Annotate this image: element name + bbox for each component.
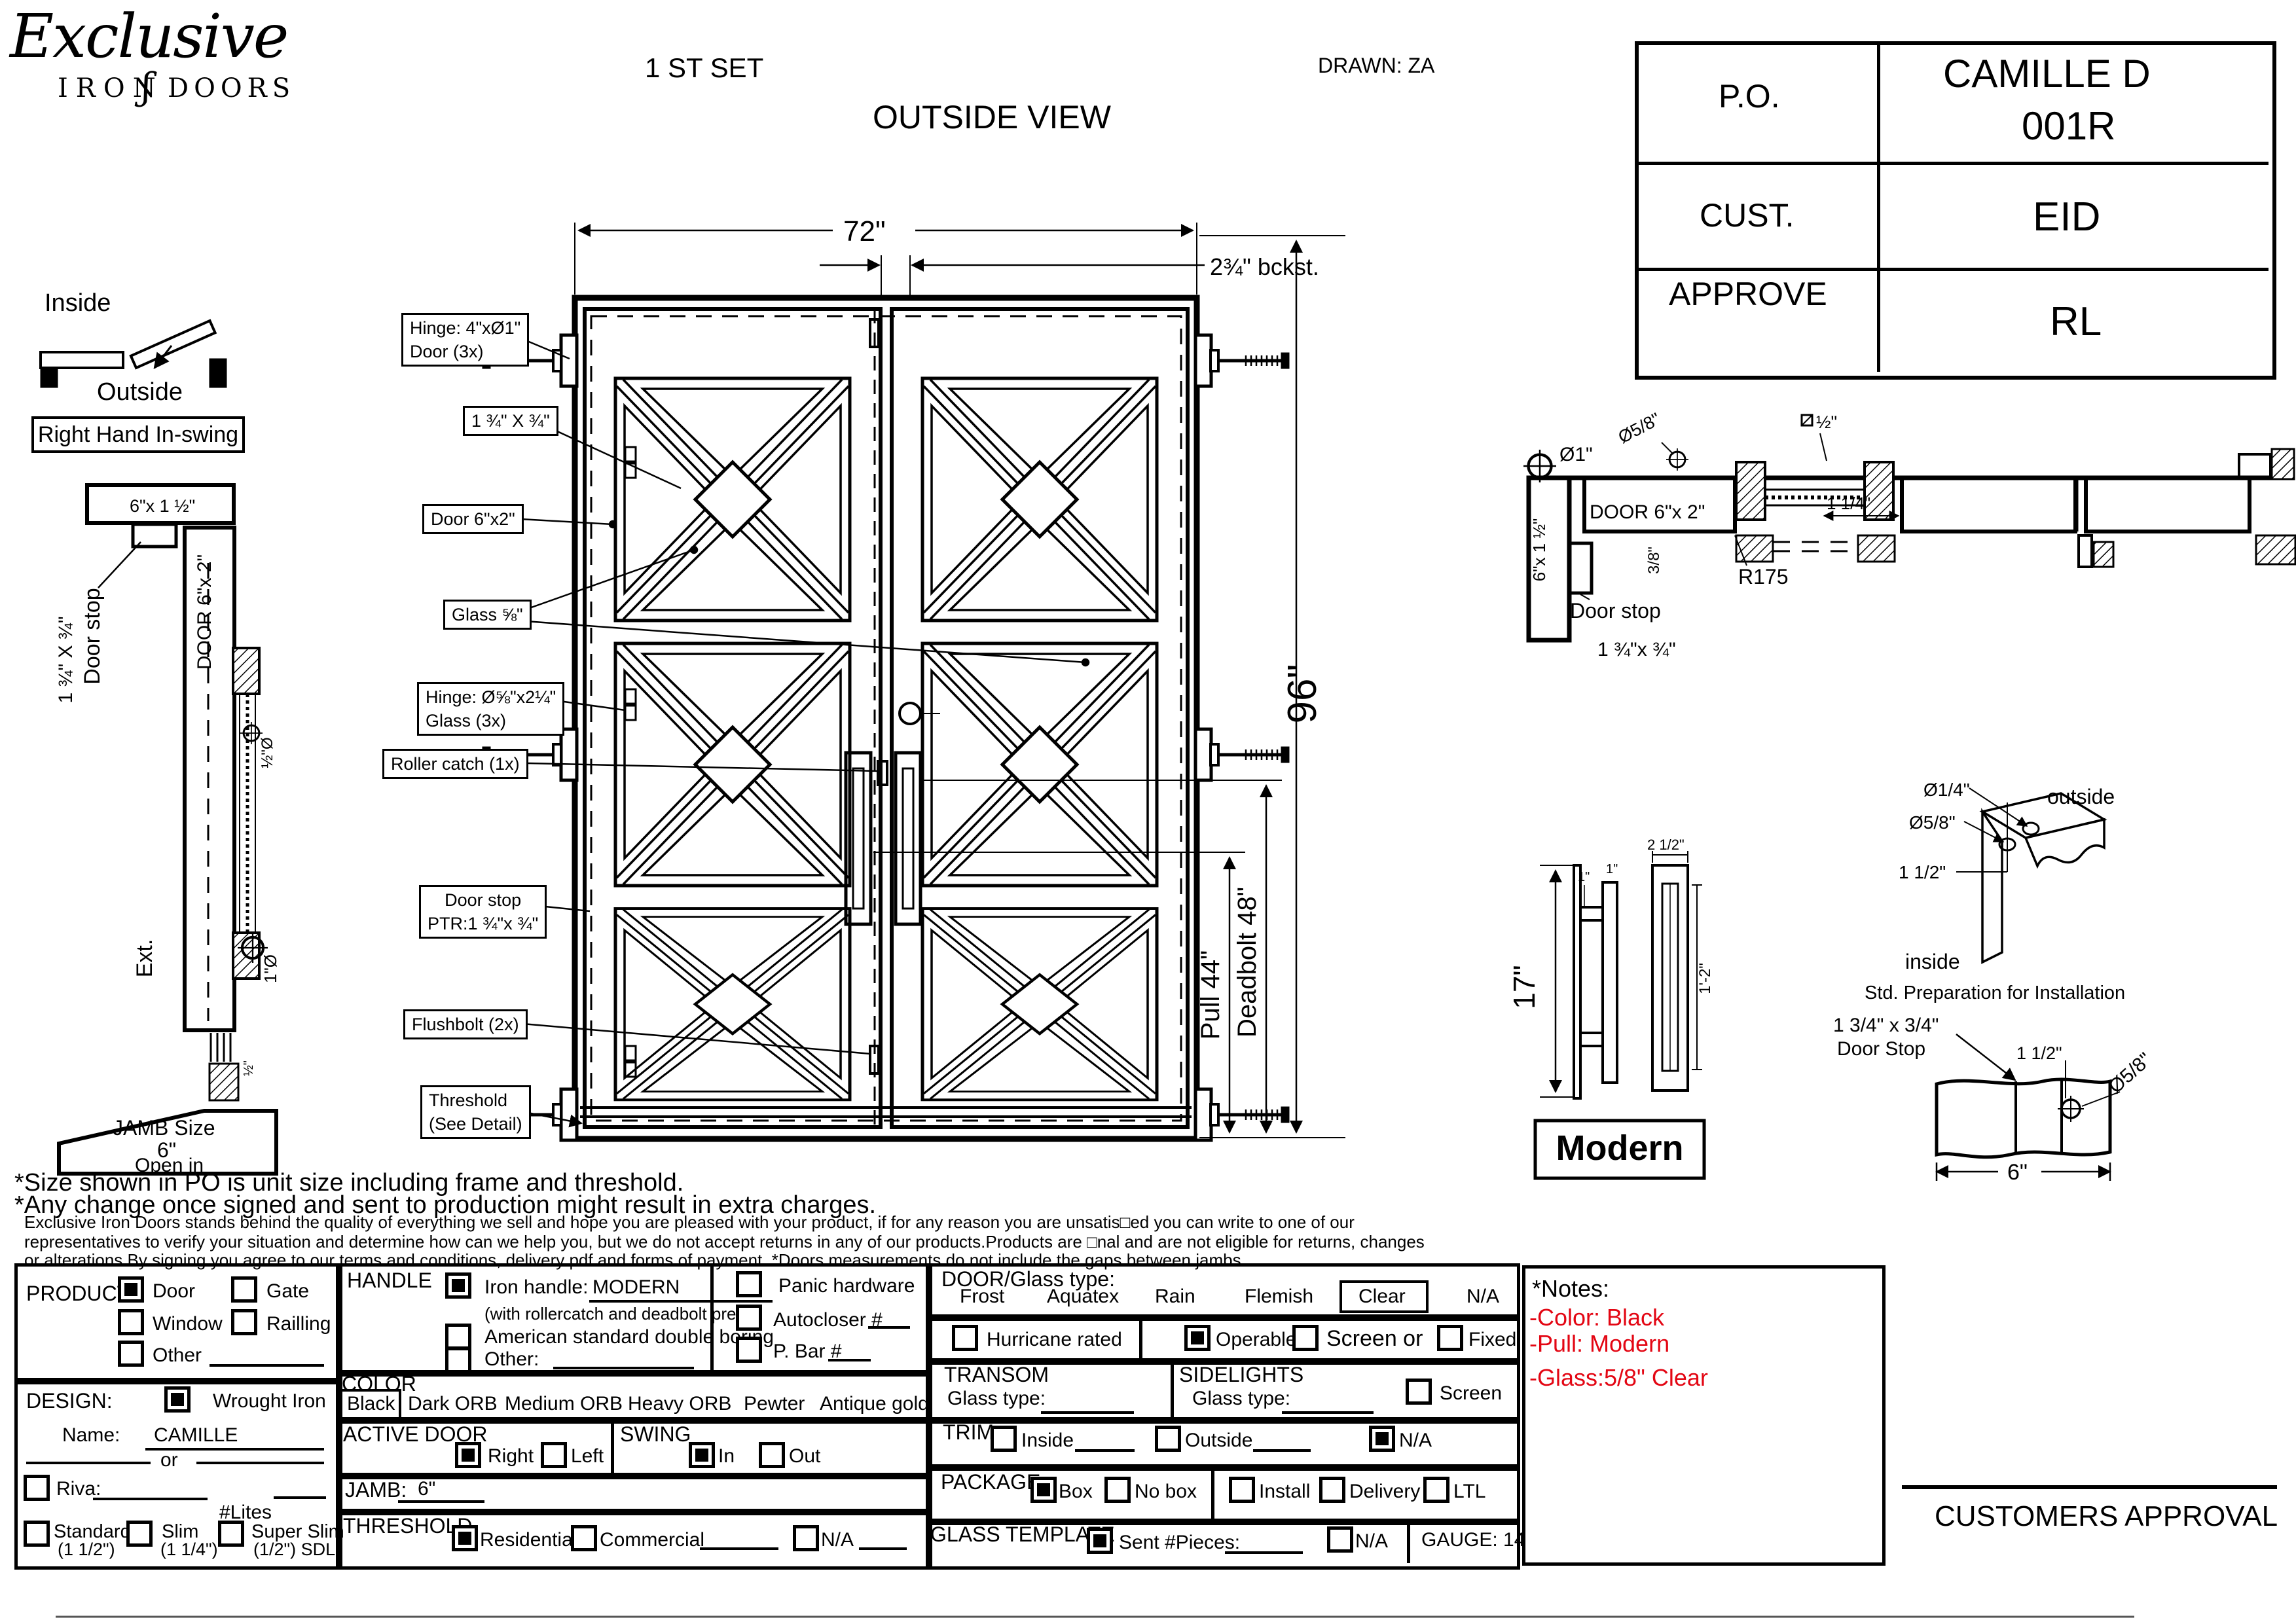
handing-box: Right Hand In-swing	[31, 416, 245, 453]
product-other-checkbox[interactable]	[118, 1341, 144, 1367]
logo-exclusive-script: Exclusive	[10, 1, 287, 71]
riva-checkbox[interactable]	[24, 1475, 50, 1501]
sidelights-glass-label: Glass type:	[1192, 1388, 1290, 1410]
head-dia-one: Ø1"	[1559, 444, 1593, 465]
pbar-checkbox[interactable]	[736, 1337, 762, 1363]
transom-label: TRANSOM	[944, 1363, 1049, 1387]
glass-rain-option[interactable]: Rain	[1155, 1286, 1195, 1308]
autocloser-label: Autocloser #	[773, 1309, 883, 1331]
product-gate-checkbox[interactable]	[231, 1276, 257, 1303]
door-shop-drawing-sheet: 6"x 1 ½" Door stop 1 ¾" X ¾" DOOR 6"x 2"…	[0, 0, 2296, 1622]
package-ltl-label: LTL	[1453, 1481, 1485, 1503]
design-wrought-label: Wrought Iron	[213, 1390, 326, 1413]
design-name-label: Name:	[62, 1424, 120, 1447]
design-wrought-checkbox[interactable]	[164, 1386, 191, 1413]
package-delivery-checkbox[interactable]	[1319, 1477, 1345, 1503]
install-inside: inside	[1905, 950, 1960, 973]
callout-flushbolt: Flushbolt (2x)	[403, 1009, 528, 1039]
package-nobox-label: No box	[1135, 1481, 1197, 1503]
dim-height: 96"	[1280, 664, 1325, 724]
color-black-option[interactable]: Black	[347, 1393, 395, 1415]
swing-in-checkbox[interactable]	[689, 1442, 715, 1468]
head-radius: R175	[1738, 565, 1789, 588]
info-table-col-divider	[1877, 41, 1880, 372]
trim-na-label: N/A	[1399, 1430, 1432, 1452]
product-railing-label: Railling	[266, 1313, 331, 1335]
glass-aquatex-option[interactable]: Aquatex	[1047, 1286, 1119, 1308]
transom-sidelights-divider	[1171, 1358, 1174, 1417]
threshold-residential-label: Residential	[480, 1529, 577, 1551]
callout-bar-size: 1 ¾" X ¾"	[463, 406, 558, 436]
package-ltl-checkbox[interactable]	[1423, 1477, 1449, 1503]
stop-dim-112: 1 1/2"	[2016, 1043, 2062, 1063]
riva-field[interactable]	[93, 1474, 208, 1500]
superslim-sub-label: (1/2") SDL	[253, 1540, 335, 1560]
glass-frost-option[interactable]: Frost	[960, 1286, 1004, 1308]
swing-out-checkbox[interactable]	[759, 1442, 785, 1468]
operable-label: Operable	[1216, 1329, 1296, 1351]
hurricane-label: Hurricane rated	[987, 1329, 1122, 1351]
dim-deadbolt: Deadbolt 48"	[1233, 887, 1262, 1037]
swing-diagram	[41, 321, 227, 387]
handle-iron-checkbox[interactable]	[445, 1272, 471, 1299]
screen-or-checkbox[interactable]	[1292, 1325, 1319, 1351]
product-door-checkbox[interactable]	[118, 1276, 144, 1303]
disclaimer-line3: Exclusive Iron Doors stands behind the q…	[24, 1212, 1355, 1233]
handle-american-checkbox[interactable]	[445, 1324, 471, 1350]
customers-approval-label: CUSTOMERS APPROVAL	[1935, 1500, 2278, 1533]
dim-width: 72"	[843, 215, 886, 247]
jamb-field[interactable]	[398, 1477, 484, 1503]
active-right-checkbox[interactable]	[455, 1442, 481, 1468]
callout-hinge-door: Hinge: 4"xØ1"Door (3x)	[401, 313, 529, 367]
jamb-dia-half-label: ½"Ø	[259, 737, 276, 768]
stop-size-2: Door Stop	[1837, 1038, 1925, 1060]
glass-clear-option[interactable]: Clear	[1358, 1286, 1406, 1308]
product-gate-label: Gate	[266, 1280, 309, 1303]
head-half: ½"	[1816, 412, 1837, 432]
panic-checkbox[interactable]	[736, 1271, 762, 1297]
threshold-residential-checkbox[interactable]	[452, 1525, 478, 1551]
po-label: P.O.	[1719, 77, 1780, 115]
threshold-commercial-label: Commercial	[600, 1529, 704, 1551]
handle-label: HANDLE	[347, 1269, 432, 1293]
po-value-line1: CAMILLE D	[1943, 51, 2151, 96]
threshold-commercial-checkbox[interactable]	[571, 1525, 597, 1551]
drawn-label: DRAWN: ZA	[1318, 54, 1434, 78]
stop-dim-6: 6"	[2007, 1160, 2028, 1185]
swing-label: SWING	[620, 1422, 691, 1447]
dim-pull: Pull 44"	[1196, 950, 1225, 1040]
install-dim: 1 1/2"	[1899, 862, 1946, 882]
view-label: OUTSIDE VIEW	[873, 98, 1111, 136]
package-install-label: Install	[1259, 1481, 1310, 1503]
package-box-label: Box	[1059, 1481, 1093, 1503]
product-window-label: Window	[153, 1313, 223, 1335]
swing-in-label: In	[718, 1445, 735, 1468]
color-pewter-option[interactable]: Pewter	[744, 1393, 805, 1415]
handle-name: Modern	[1556, 1128, 1684, 1168]
product-window-checkbox[interactable]	[118, 1309, 144, 1335]
template-na-checkbox[interactable]	[1327, 1526, 1353, 1553]
jamb-door-stop-label: Door stop	[80, 588, 105, 684]
logo-doors: DOORS	[168, 73, 295, 103]
approve-label: APPROVE	[1669, 275, 1827, 313]
template-sent-checkbox[interactable]	[1087, 1528, 1113, 1554]
package-box-checkbox[interactable]	[1030, 1477, 1057, 1503]
autocloser-checkbox[interactable]	[736, 1305, 762, 1331]
callout-threshold: Threshold(See Detail)	[420, 1085, 531, 1139]
template-sent-label: Sent #Pieces:	[1119, 1532, 1240, 1554]
glass-flemish-option[interactable]: Flemish	[1245, 1286, 1313, 1308]
glass-hinges	[625, 447, 636, 1077]
handle-iron-label: Iron handle:	[484, 1276, 588, 1299]
head-door-tube: DOOR 6"x 2"	[1590, 501, 1705, 523]
logo-flourish-icon: ʃ	[141, 65, 151, 108]
package-delivery-label: Delivery	[1349, 1481, 1420, 1503]
trim-na-checkbox[interactable]	[1369, 1426, 1395, 1452]
sidelights-glass-field[interactable]	[1282, 1388, 1374, 1414]
swing-inside-label: Inside	[45, 289, 111, 317]
panic-label: Panic hardware	[778, 1275, 915, 1297]
autocloser-field[interactable]	[868, 1305, 910, 1329]
template-sent-field[interactable]	[1225, 1529, 1303, 1554]
handle-prep-label: (with rollercatch and deadbolt prep)	[484, 1304, 752, 1324]
approve-value: RL	[2050, 298, 2102, 345]
color-dark-orb-option[interactable]: Dark ORB	[408, 1393, 498, 1415]
standard-sub-label: (1 1/2")	[58, 1540, 115, 1560]
or-divider-left	[26, 1462, 151, 1464]
jamb-door-tube-label: DOOR 6"x 2"	[194, 554, 215, 670]
swing-outside-label: Outside	[97, 378, 183, 406]
stop-dia-58: Ø5/8"	[2105, 1049, 2156, 1098]
design-name-field[interactable]	[145, 1424, 324, 1451]
or-label: or	[160, 1449, 178, 1471]
callout-roller-catch: Roller catch (1x)	[382, 749, 528, 779]
handle-height: 17"	[1507, 965, 1541, 1009]
riva-field-2[interactable]	[274, 1473, 326, 1499]
slim-sub-label: (1 1/4")	[160, 1540, 218, 1560]
trim-outside-field[interactable]	[1253, 1427, 1311, 1452]
color-heavy-orb-option[interactable]: Heavy ORB	[628, 1393, 731, 1415]
install-dia-58: Ø5/8"	[1909, 812, 1956, 833]
install-dia-14: Ø1/4"	[1923, 780, 1970, 800]
product-door-label: Door	[153, 1280, 195, 1303]
cust-value: EID	[2033, 194, 2100, 240]
transom-glass-field[interactable]	[1041, 1388, 1134, 1414]
jamb-half-dim-label: ½"	[242, 1060, 256, 1076]
head-dim-38: 3/8"	[1645, 547, 1663, 574]
trim-inside-label: Inside	[1021, 1430, 1074, 1452]
info-table-row2-divider	[1635, 268, 2269, 271]
jamb-size-line1: JAMB Size	[113, 1116, 215, 1140]
handle-other-field[interactable]	[553, 1346, 694, 1369]
head-dim-114: 1 1/4"	[1827, 494, 1870, 513]
trim-inside-checkbox[interactable]	[991, 1426, 1017, 1452]
standard-checkbox[interactable]	[24, 1521, 50, 1547]
handle-one-a: 1"	[1578, 870, 1590, 884]
active-right-label: Right	[488, 1445, 534, 1468]
disclaimer-line4: representatives to verify your situation…	[24, 1232, 1425, 1252]
template-na-label: N/A	[1355, 1530, 1388, 1553]
install-detail	[1956, 788, 2104, 962]
product-railing-checkbox[interactable]	[231, 1309, 257, 1335]
sidelights-screen-checkbox[interactable]	[1406, 1379, 1432, 1405]
threshold-na-field[interactable]	[859, 1525, 907, 1550]
sidelights-screen-label: Screen	[1440, 1382, 1502, 1405]
info-table-row1-divider	[1635, 162, 2269, 165]
trim-outside-checkbox[interactable]	[1155, 1426, 1181, 1452]
active-left-checkbox[interactable]	[541, 1442, 567, 1468]
jamb-ext-label: Ext.	[132, 939, 157, 978]
active-swing-divider	[611, 1417, 614, 1473]
stop-size-1: 1 3/4" x 3/4"	[1833, 1015, 1939, 1036]
set-label: 1 ST SET	[645, 52, 763, 84]
package-label: PACKAGE	[941, 1470, 1040, 1494]
trim-outside-label: Outside	[1185, 1430, 1252, 1452]
product-other-label: Other	[153, 1344, 202, 1367]
notes-pull: -Pull: Modern	[1529, 1330, 1669, 1358]
callout-hinge-glass: Hinge: Ø⅝"x2¼"Glass (3x)	[417, 682, 564, 736]
head-dia-58: Ø5/8"	[1615, 409, 1664, 447]
pbar-field[interactable]	[828, 1338, 871, 1361]
notes-title: *Notes:	[1532, 1275, 1609, 1303]
gauge-divider	[1407, 1519, 1410, 1563]
install-caption: Std. Preparation for Installation	[1865, 982, 2125, 1003]
threshold-commercial-field[interactable]	[700, 1525, 778, 1550]
notes-color: -Color: Black	[1529, 1304, 1664, 1331]
trim-inside-field[interactable]	[1075, 1427, 1135, 1452]
fixed-label: Fixed	[1468, 1329, 1516, 1351]
design-label: DESIGN:	[26, 1389, 113, 1413]
color-medium-orb-option[interactable]: Medium ORB	[505, 1393, 623, 1415]
threshold-na-label: N/A	[821, 1529, 854, 1551]
product-other-field[interactable]	[210, 1342, 324, 1367]
rated-divider	[1139, 1314, 1142, 1358]
glass-na-option[interactable]: N/A	[1467, 1286, 1499, 1308]
install-outside: outside	[2047, 785, 2115, 808]
package-nobox-checkbox[interactable]	[1104, 1477, 1131, 1503]
or-divider-right	[196, 1462, 324, 1464]
sidelights-label: SIDELIGHTS	[1179, 1363, 1303, 1387]
jamb-door-stop-size-label: 1 ¾" X ¾"	[55, 616, 77, 703]
notes-glass: -Glass:5/8" Clear	[1529, 1364, 1708, 1392]
active-left-label: Left	[571, 1445, 604, 1468]
threshold-na-checkbox[interactable]	[793, 1525, 819, 1551]
operable-checkbox[interactable]	[1184, 1325, 1211, 1351]
head-jamb-size: 6"x 1 ½"	[1529, 518, 1549, 582]
jamb-header-size-label: 6"x 1 ½"	[130, 496, 195, 516]
fixed-checkbox[interactable]	[1437, 1325, 1463, 1351]
callout-glass: Glass ⅝"	[443, 600, 532, 630]
transom-glass-label: Glass type:	[947, 1388, 1046, 1410]
jamb-dia-one-label: 1"Ø	[261, 954, 280, 983]
callout-door-tube: Door 6"x2"	[422, 504, 524, 534]
head-door-stop: Door stop	[1570, 599, 1661, 622]
handle-other-label: Other:	[484, 1348, 539, 1371]
screen-or-label: Screen or	[1326, 1326, 1423, 1352]
callout-door-stop: Door stopPTR:1 ¾"x ¾"	[419, 885, 547, 939]
handle-other-checkbox[interactable]	[445, 1347, 471, 1373]
hurricane-checkbox[interactable]	[952, 1325, 978, 1351]
slim-checkbox[interactable]	[126, 1521, 153, 1547]
cust-label: CUST.	[1700, 196, 1794, 234]
trim-label: TRIM	[943, 1420, 994, 1445]
dim-backset: 2¾" bckst.	[1210, 253, 1319, 280]
handle-american-label: American standard double boring	[484, 1326, 774, 1348]
handle-one-b: 1"	[1606, 862, 1618, 876]
handle-inner: 1'-2"	[1696, 963, 1714, 994]
door-elevation	[483, 298, 1289, 1140]
po-value-line2: 001R	[2022, 103, 2115, 149]
gauge-label: GAUGE: 14	[1421, 1529, 1525, 1551]
head-stop-size: 1 ¾"x ¾"	[1597, 639, 1676, 660]
handle-width: 2 1/2"	[1647, 837, 1685, 853]
package-divider	[1211, 1464, 1214, 1519]
package-install-checkbox[interactable]	[1229, 1477, 1255, 1503]
superslim-checkbox[interactable]	[218, 1521, 244, 1547]
swing-out-label: Out	[789, 1445, 820, 1468]
color-antique-gold-option[interactable]: Antique gold	[820, 1393, 929, 1415]
